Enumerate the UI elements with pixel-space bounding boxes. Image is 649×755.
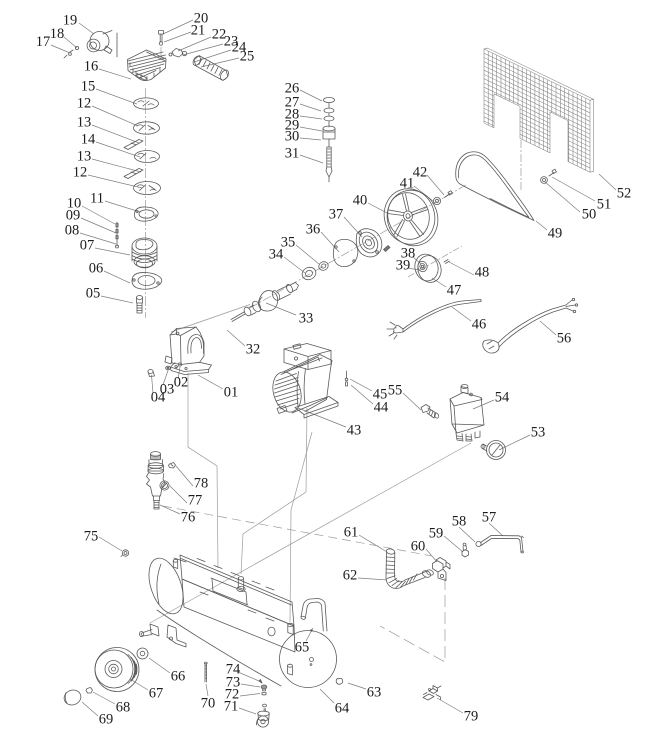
svg-text:54: 54 <box>495 390 510 406</box>
svg-text:59: 59 <box>429 526 444 542</box>
svg-text:71: 71 <box>224 699 239 715</box>
svg-text:57: 57 <box>482 510 497 526</box>
svg-text:40: 40 <box>353 193 368 209</box>
svg-text:07: 07 <box>80 238 95 254</box>
svg-text:14: 14 <box>81 132 96 148</box>
svg-text:25: 25 <box>240 49 255 65</box>
svg-text:30: 30 <box>285 129 300 145</box>
svg-text:75: 75 <box>84 529 99 545</box>
svg-text:77: 77 <box>188 493 203 509</box>
svg-text:66: 66 <box>171 669 186 685</box>
svg-text:53: 53 <box>531 425 546 441</box>
svg-text:17: 17 <box>36 34 51 50</box>
svg-text:62: 62 <box>343 568 358 584</box>
svg-text:78: 78 <box>194 476 209 492</box>
svg-text:48: 48 <box>475 265 490 281</box>
svg-text:32: 32 <box>246 342 261 358</box>
svg-text:52: 52 <box>617 186 632 202</box>
svg-text:06: 06 <box>89 261 104 277</box>
svg-text:44: 44 <box>374 400 389 416</box>
svg-text:46: 46 <box>472 317 487 333</box>
svg-text:55: 55 <box>388 383 403 399</box>
svg-text:04: 04 <box>151 390 166 406</box>
svg-text:47: 47 <box>447 283 462 299</box>
svg-text:36: 36 <box>306 222 321 238</box>
svg-text:34: 34 <box>269 247 284 263</box>
svg-text:64: 64 <box>335 701 350 717</box>
svg-text:05: 05 <box>86 286 101 302</box>
svg-text:21: 21 <box>191 23 206 39</box>
svg-text:19: 19 <box>63 13 78 29</box>
svg-text:67: 67 <box>149 686 164 702</box>
svg-text:13: 13 <box>77 149 92 165</box>
svg-text:09: 09 <box>66 208 81 224</box>
svg-text:49: 49 <box>548 226 563 242</box>
svg-text:69: 69 <box>99 712 114 728</box>
svg-text:58: 58 <box>452 514 467 530</box>
svg-text:63: 63 <box>367 685 382 701</box>
svg-text:01: 01 <box>224 385 239 401</box>
svg-text:65: 65 <box>295 640 310 656</box>
svg-text:61: 61 <box>344 525 359 541</box>
svg-text:68: 68 <box>116 700 131 716</box>
svg-text:51: 51 <box>597 197 612 213</box>
svg-text:39: 39 <box>396 258 411 274</box>
svg-text:79: 79 <box>464 709 479 725</box>
svg-text:37: 37 <box>329 207 344 223</box>
svg-text:18: 18 <box>50 26 65 42</box>
svg-text:08: 08 <box>65 223 80 239</box>
svg-text:50: 50 <box>582 207 597 223</box>
svg-text:60: 60 <box>411 539 426 555</box>
svg-text:33: 33 <box>299 311 314 327</box>
svg-text:15: 15 <box>81 79 96 95</box>
svg-text:70: 70 <box>201 696 216 712</box>
svg-text:42: 42 <box>413 165 428 181</box>
svg-text:43: 43 <box>347 423 362 439</box>
svg-text:56: 56 <box>557 331 572 347</box>
svg-text:13: 13 <box>77 115 92 131</box>
svg-text:12: 12 <box>73 165 88 181</box>
svg-text:11: 11 <box>90 191 104 207</box>
svg-text:76: 76 <box>181 510 196 526</box>
svg-text:12: 12 <box>77 96 92 112</box>
svg-text:02: 02 <box>174 375 189 391</box>
svg-text:16: 16 <box>84 59 99 75</box>
svg-text:31: 31 <box>285 146 300 162</box>
